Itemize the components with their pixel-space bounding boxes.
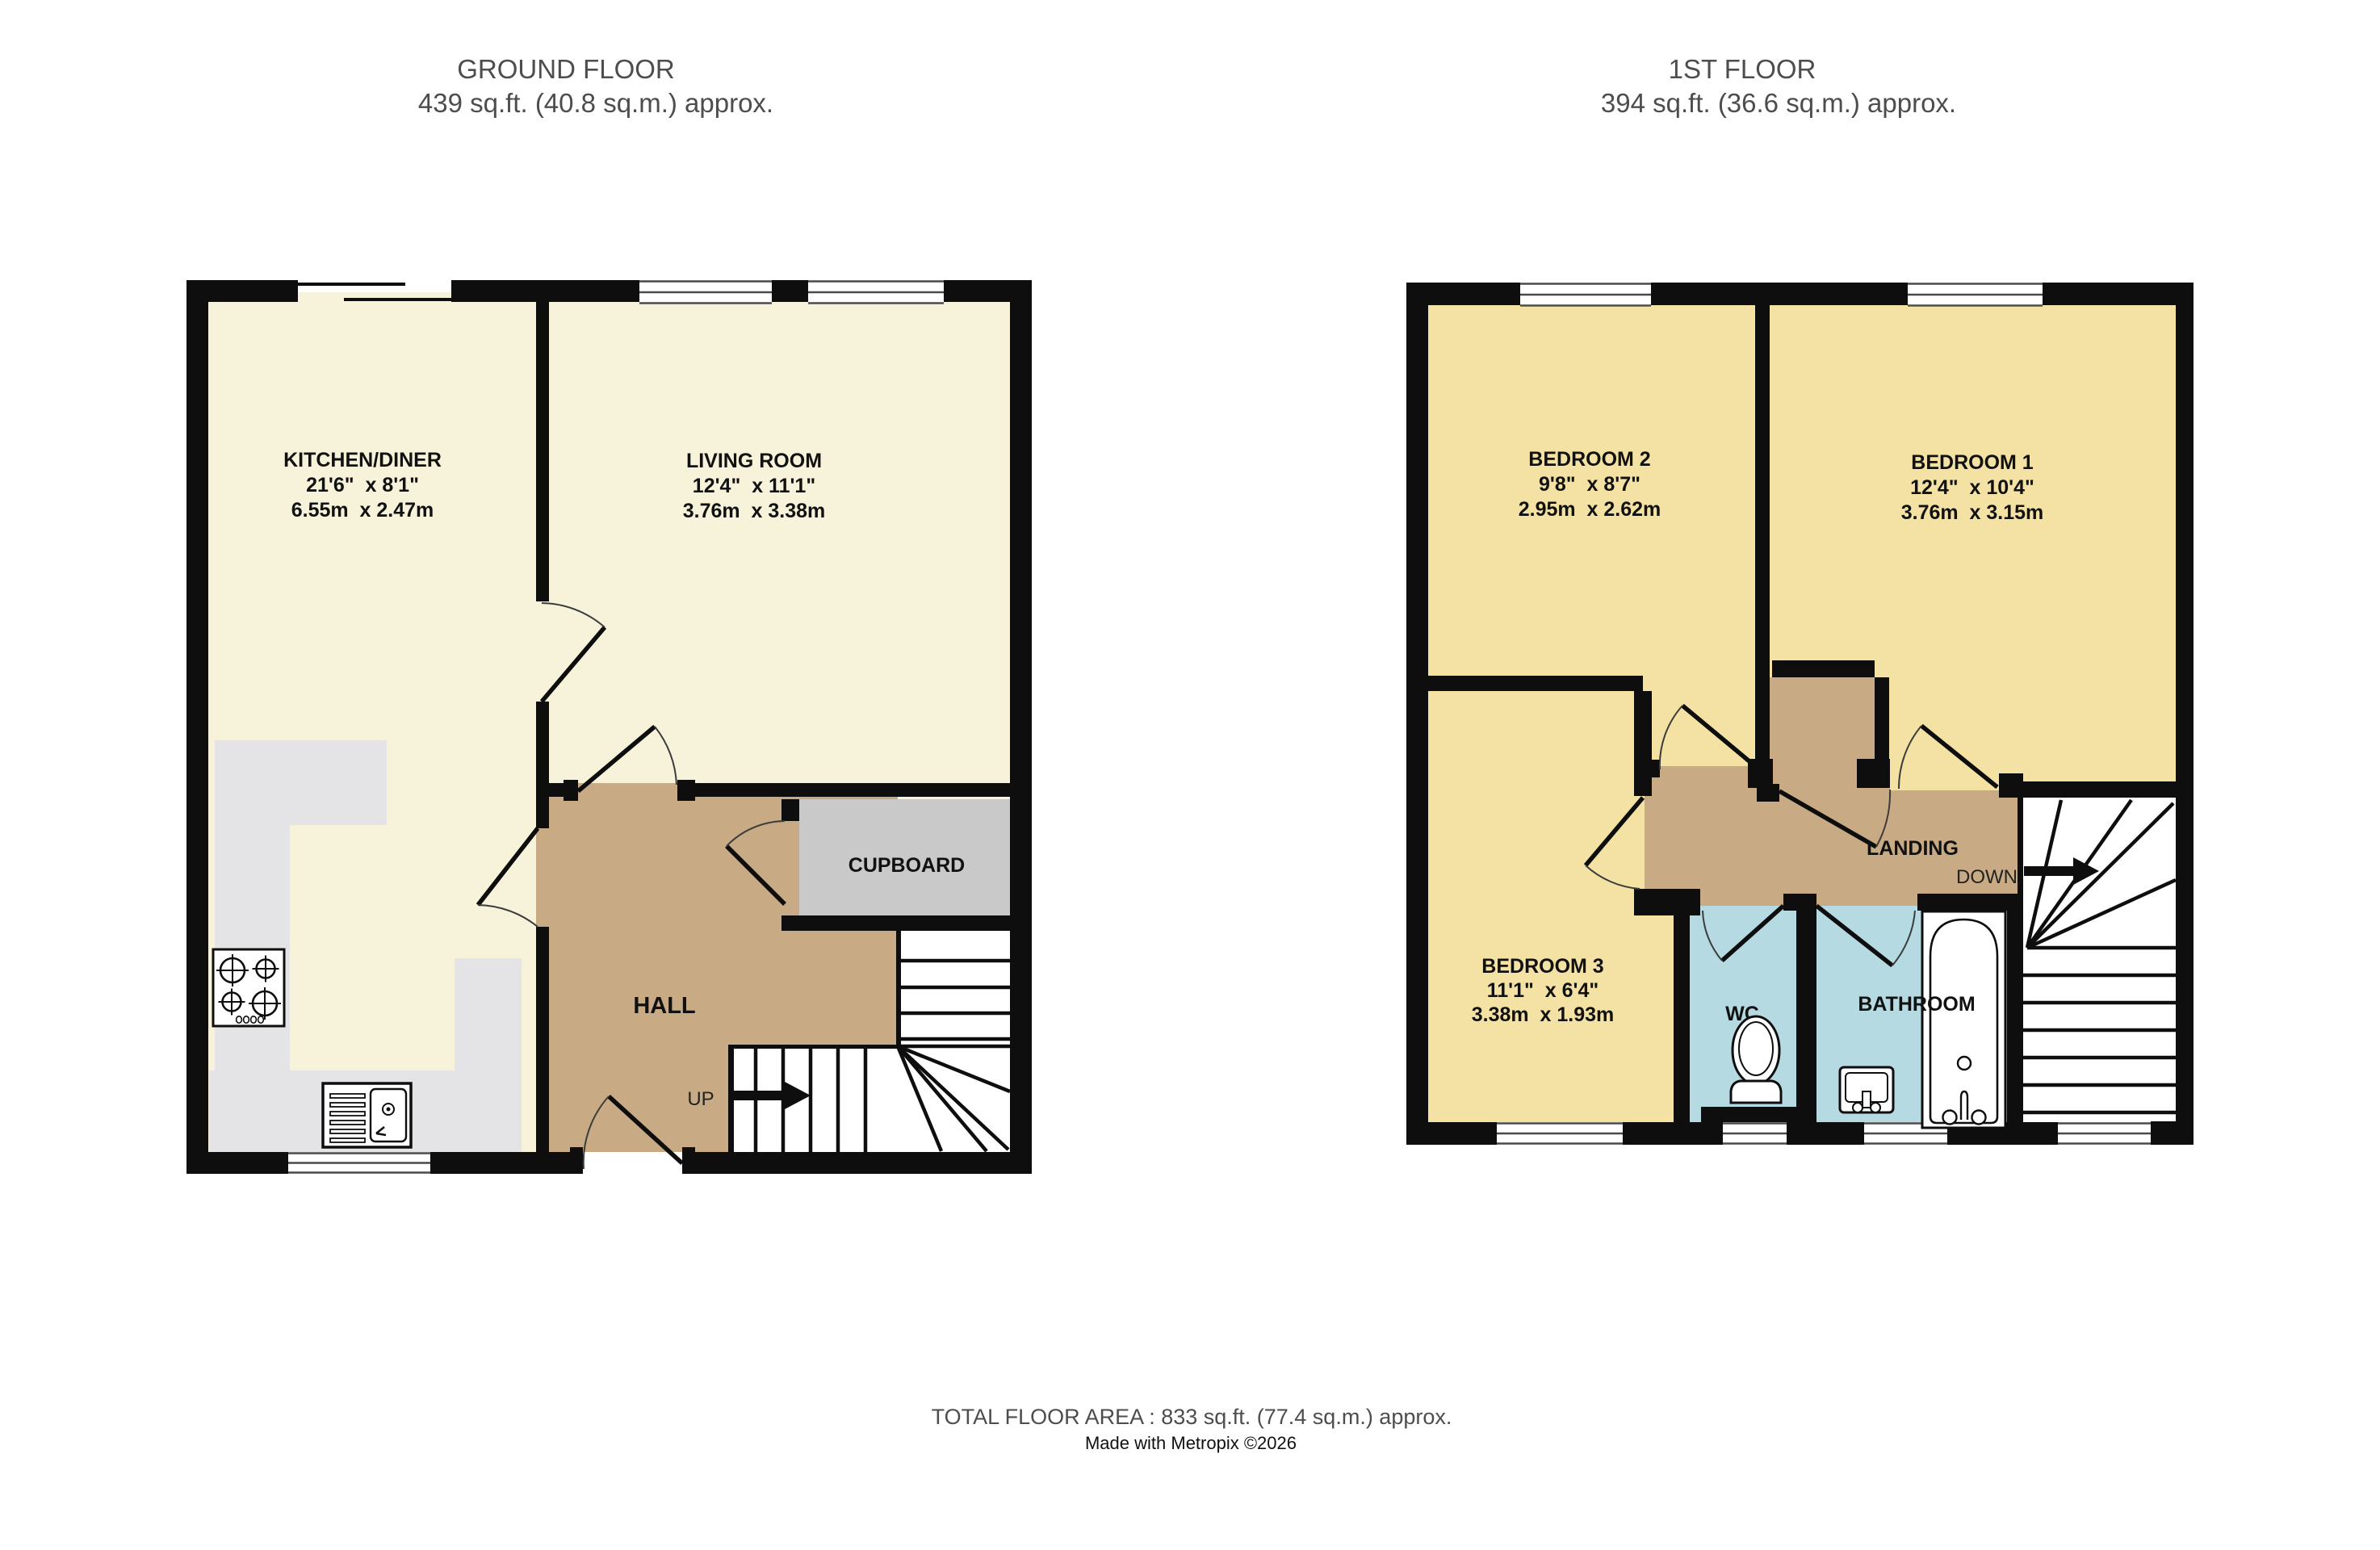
svg-text:BEDROOM 3: BEDROOM 3 xyxy=(1481,955,1603,978)
svg-text:2.95m x 2.62m: 2.95m x 2.62m xyxy=(1519,498,1661,521)
svg-text:12'4" x 11'1": 12'4" x 11'1" xyxy=(693,475,815,497)
svg-text:LIVING ROOM: LIVING ROOM xyxy=(686,450,822,472)
svg-text:11'1" x 6'4": 11'1" x 6'4" xyxy=(1487,979,1599,1002)
svg-text:9'8" x 8'7": 9'8" x 8'7" xyxy=(1539,473,1640,496)
svg-text:439 sq.ft. (40.8 sq.m.) approx: 439 sq.ft. (40.8 sq.m.) approx. xyxy=(418,88,773,118)
svg-text:3.76m x 3.15m: 3.76m x 3.15m xyxy=(1901,501,2044,524)
svg-text:12'4" x 10'4": 12'4" x 10'4" xyxy=(1910,476,2034,499)
svg-text:TOTAL FLOOR AREA : 833 sq.ft.: TOTAL FLOOR AREA : 833 sq.ft. (77.4 sq.m… xyxy=(932,1405,1452,1429)
svg-text:21'6" x 8'1": 21'6" x 8'1" xyxy=(306,474,419,496)
svg-text:1ST FLOOR: 1ST FLOOR xyxy=(1669,54,1816,84)
svg-text:3.76m x 3.38m: 3.76m x 3.38m xyxy=(683,500,826,522)
svg-text:HALL: HALL xyxy=(633,993,695,1019)
svg-text:6.55m x 2.47m: 6.55m x 2.47m xyxy=(291,499,434,522)
svg-text:GROUND FLOOR: GROUND FLOOR xyxy=(457,54,675,84)
svg-text:Made with Metropix ©2026: Made with Metropix ©2026 xyxy=(1085,1433,1297,1453)
svg-text:BEDROOM 2: BEDROOM 2 xyxy=(1528,448,1650,471)
svg-text:BEDROOM 1: BEDROOM 1 xyxy=(1911,451,2034,474)
svg-text:UP: UP xyxy=(687,1088,714,1110)
svg-text:KITCHEN/DINER: KITCHEN/DINER xyxy=(283,449,442,471)
svg-text:3.38m x 1.93m: 3.38m x 1.93m xyxy=(1472,1003,1615,1026)
svg-text:394 sq.ft. (36.6 sq.m.) approx: 394 sq.ft. (36.6 sq.m.) approx. xyxy=(1601,88,1956,118)
svg-text:CUPBOARD: CUPBOARD xyxy=(849,854,965,877)
svg-text:LANDING: LANDING xyxy=(1867,837,1959,860)
svg-text:BATHROOM: BATHROOM xyxy=(1858,993,1975,1016)
svg-text:DOWN: DOWN xyxy=(1956,866,2018,888)
